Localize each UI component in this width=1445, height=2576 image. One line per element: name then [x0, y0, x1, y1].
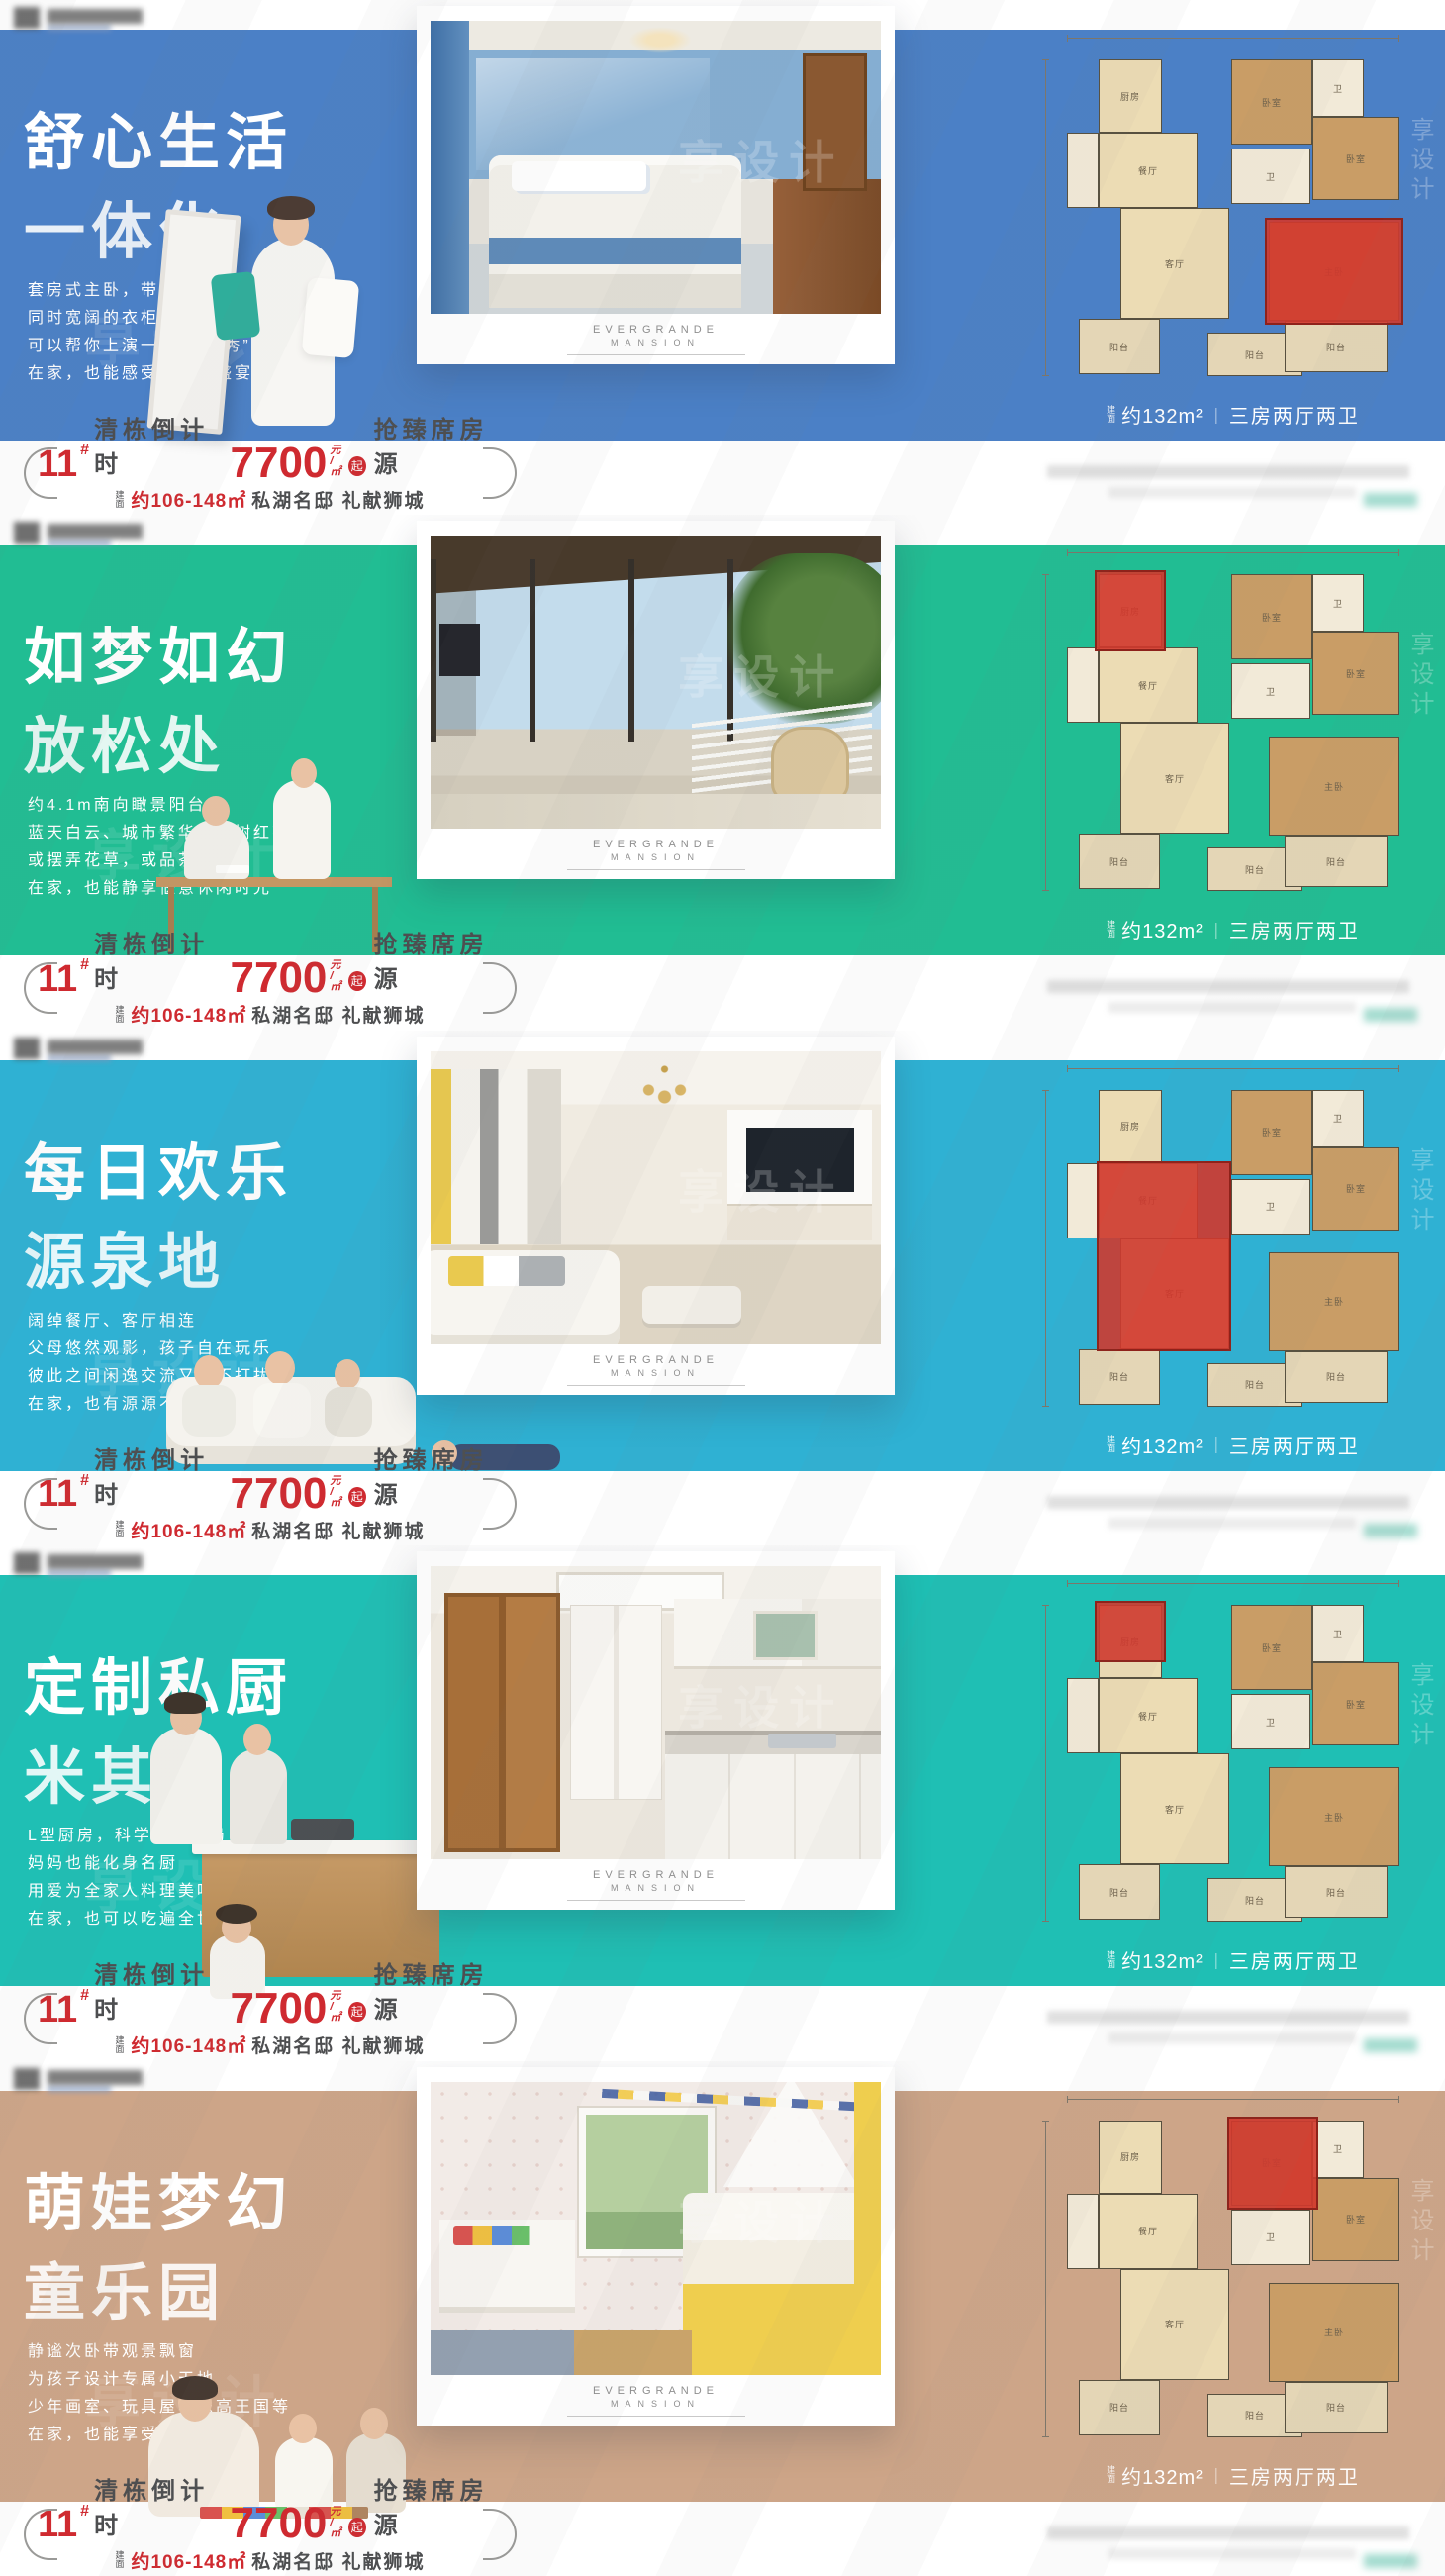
- logo-subtext-blur: [48, 26, 111, 31]
- floor-plan: 厨房 餐厅 客厅 阳台 阳台 卧室 卫 卧室 卫 主卧 阳台 建面 约132m²…: [1061, 2115, 1405, 2490]
- from-badge: 起: [348, 2518, 366, 2537]
- from-badge: 起: [348, 971, 366, 991]
- blurred-site-mark: [1364, 1008, 1417, 1022]
- interior-photo: 享设计: [431, 21, 881, 314]
- room-label: 客厅: [1165, 772, 1185, 785]
- room-label: 阳台: [1245, 1894, 1265, 1907]
- room-label: 厨房: [1120, 2150, 1140, 2163]
- title-line-1: 每日欢乐: [24, 1139, 293, 1208]
- room-label: 卧室: [1346, 1182, 1366, 1195]
- brand-line-2: MANSION: [431, 338, 881, 347]
- room-label: 客厅: [1165, 1803, 1185, 1816]
- cutout-shape: [267, 196, 315, 220]
- room-living: 客厅: [1120, 723, 1229, 834]
- room-bedroom: 卧室: [1312, 117, 1399, 200]
- cutout-shape: [273, 780, 331, 879]
- room-kitchen: 厨房: [1099, 59, 1162, 133]
- promo-banner: 萌娃梦幻童乐园 静谧次卧带观景飘窗 为孩子设计专属小天地 少年画室、玩具屋、乐高…: [0, 2061, 1445, 2576]
- price-line-1: 11 # 清栋倒计时 7700 元/㎡ 起 抢臻席房源: [38, 444, 503, 481]
- photo-shape: [444, 1593, 560, 1853]
- cutout-shape: [192, 1840, 447, 1854]
- photo-shape: [727, 1204, 872, 1241]
- caption-prefix: 建面: [1107, 1436, 1117, 1453]
- logo-text-blur: [48, 9, 143, 24]
- area-prefix: 建面: [115, 1521, 127, 1538]
- price-bar: 11 # 清栋倒计时 7700 元/㎡ 起 抢臻席房源 建面 约106-148㎡…: [38, 1989, 503, 2052]
- bracket-left: [24, 447, 57, 499]
- blurred-site-mark: [1364, 2038, 1417, 2052]
- logo-text-blur: [48, 1554, 143, 1569]
- room-label: 卧室: [1346, 152, 1366, 165]
- caption-area: 约132m²: [1121, 400, 1204, 429]
- price-bar: 11 # 清栋倒计时 7700 元/㎡ 起 抢臻席房源 建面 约106-148㎡…: [38, 2505, 503, 2568]
- room-label: 阳台: [1326, 341, 1346, 353]
- room-bedroom: 卧室: [1231, 1090, 1312, 1175]
- room-living: 客厅: [1120, 1753, 1229, 1864]
- room-label: 卫: [1266, 685, 1276, 698]
- room-label: 客厅: [1165, 2318, 1185, 2330]
- price-unit-top: 元: [330, 2507, 341, 2518]
- price-line-2: 建面 约106-148㎡ 私湖名邸 礼献狮城: [38, 486, 503, 513]
- highlighted-room: [1097, 1161, 1231, 1351]
- dimension-line: [1045, 574, 1046, 891]
- bracket-right: [483, 2509, 517, 2560]
- floor-plan: 厨房 餐厅 客厅 阳台 阳台 卧室 卫 卧室 卫 主卧 阳台 建面 约132m²…: [1061, 1599, 1405, 1974]
- photo-shape: [431, 21, 469, 314]
- cutout-shape: [182, 1385, 236, 1437]
- caption-separator: ｜: [1208, 1433, 1224, 1456]
- brand-line-1: EVERGRANDE: [431, 839, 881, 850]
- room-bedroom: 卧室: [1231, 1605, 1312, 1690]
- price-unit-bottom: /㎡: [330, 456, 341, 478]
- price-amount: 7700: [231, 1991, 328, 2027]
- area-prefix: 建面: [115, 2551, 127, 2569]
- room-label: 餐厅: [1138, 164, 1158, 177]
- room-label: 卧室: [1262, 1126, 1282, 1139]
- floor-plan: 厨房 餐厅 客厅 阳台 阳台 卧室 卫 卧室 卫 主卧 阳台 建面 约132m²…: [1061, 1084, 1405, 1459]
- room-label: 阳台: [1326, 1370, 1346, 1383]
- room-label: 阳台: [1245, 863, 1265, 876]
- room-kitchen: 厨房: [1099, 1090, 1162, 1163]
- building-number-hash: #: [80, 956, 89, 974]
- price-unit: 元/㎡: [330, 960, 341, 996]
- room-bath: 卫: [1312, 59, 1364, 117]
- photo-shape: [642, 1286, 741, 1324]
- price-line-1: 11 # 清栋倒计时 7700 元/㎡ 起 抢臻席房源: [38, 2505, 503, 2542]
- floor-plan-caption: 建面 约132m² ｜ 三房两厅两卫: [1061, 915, 1405, 943]
- room-label: 厨房: [1120, 90, 1140, 103]
- price-line-2: 建面 约106-148㎡ 私湖名邸 礼献狮城: [38, 2031, 503, 2058]
- room-dining: 餐厅: [1099, 1678, 1198, 1753]
- photo-card: 享设计 EVERGRANDE MANSION: [417, 1551, 895, 1910]
- room-label: 卧室: [1262, 1641, 1282, 1654]
- brand-divider: [567, 869, 745, 870]
- caption-layout-type: 三房两厅两卫: [1229, 400, 1360, 429]
- developer-logo-blurred: [14, 1037, 187, 1062]
- cutout-shape: [335, 1359, 360, 1389]
- room-kitchen: 厨房: [1099, 2121, 1162, 2194]
- room-label: 卫: [1333, 2142, 1343, 2155]
- caption-area: 约132m²: [1121, 1431, 1204, 1459]
- room-label: 餐厅: [1138, 1710, 1158, 1723]
- blurred-disclaimer-text: [1108, 2548, 1356, 2559]
- description-line: 为孩子设计专属小天地: [28, 2366, 291, 2394]
- developer-logo-blurred: [14, 521, 187, 546]
- blurred-disclaimer-text: [1047, 980, 1409, 993]
- caption-layout-type: 三房两厅两卫: [1229, 915, 1360, 943]
- logo-subtext-blur: [48, 1056, 111, 1061]
- price-line-2: 建面 约106-148㎡ 私湖名邸 礼献狮城: [38, 1517, 503, 1543]
- countdown-text: 清栋倒计时: [92, 410, 223, 481]
- room-balcony: 阳台: [1285, 836, 1388, 887]
- price-line-2: 建面 约106-148㎡ 私湖名邸 礼献狮城: [38, 1001, 503, 1028]
- slogan-text: 私湖名邸 礼献狮城: [251, 2547, 425, 2574]
- room-label: 阳台: [1109, 341, 1129, 353]
- banner-title: 每日欢乐源泉地: [24, 1130, 293, 1308]
- brand-logo: EVERGRANDE MANSION: [431, 829, 881, 870]
- caption-prefix: 建面: [1107, 2466, 1117, 2484]
- photo-card: 享设计 EVERGRANDE MANSION: [417, 1037, 895, 1395]
- logo-text-blur: [48, 524, 143, 539]
- cutout-shape: [172, 2376, 218, 2400]
- room-label: 卫: [1333, 1112, 1343, 1125]
- developer-logo-blurred: [14, 6, 187, 32]
- room-label: 餐厅: [1138, 679, 1158, 692]
- brand-line-2: MANSION: [431, 2399, 881, 2409]
- room-core: [1067, 133, 1099, 208]
- building-number-hash: #: [80, 1472, 89, 1490]
- title-line-1: 如梦如幻: [24, 624, 293, 692]
- highlighted-room: [1265, 218, 1403, 325]
- room-living: 客厅: [1120, 2269, 1229, 2380]
- cutout-shape: [325, 1387, 372, 1437]
- caption-layout-type: 三房两厅两卫: [1229, 2461, 1360, 2490]
- photo-card: 享设计 EVERGRANDE MANSION: [417, 2067, 895, 2426]
- dimension-line: [1045, 1090, 1046, 1407]
- slogan-text: 私湖名邸 礼献狮城: [251, 2031, 425, 2058]
- bracket-left: [24, 962, 57, 1014]
- bracket-right: [483, 1993, 517, 2044]
- cutout-shape: [243, 1724, 271, 1755]
- photo-card: 享设计 EVERGRANDE MANSION: [417, 521, 895, 879]
- price-amount: 7700: [231, 1476, 328, 1512]
- price-amount: 7700: [231, 960, 328, 996]
- photo-shape: [803, 53, 867, 191]
- room-label: 卫: [1333, 82, 1343, 95]
- room-bath: 卫: [1231, 149, 1310, 204]
- room-bath: 卫: [1231, 1179, 1310, 1235]
- area-prefix: 建面: [115, 491, 127, 509]
- logo-subtext-blur: [48, 2087, 111, 2092]
- price-bar: 11 # 清栋倒计时 7700 元/㎡ 起 抢臻席房源 建面 约106-148㎡…: [38, 1474, 503, 1537]
- bracket-left: [24, 2509, 57, 2560]
- cutout-shape: [265, 1351, 295, 1385]
- room-label: 主卧: [1324, 780, 1344, 793]
- room-label: 卫: [1266, 1200, 1276, 1213]
- photo-card: 享设计 EVERGRANDE MANSION: [417, 6, 895, 364]
- room-core: [1067, 1678, 1099, 1753]
- room-bath: 卫: [1312, 1090, 1364, 1147]
- bracket-left: [24, 1993, 57, 2044]
- title-line-1: 萌娃梦幻: [24, 2170, 293, 2238]
- room-label: 厨房: [1120, 1120, 1140, 1133]
- brand-line-2: MANSION: [431, 1368, 881, 1378]
- room-label: 阳台: [1109, 2401, 1129, 2414]
- photo-shape: [727, 553, 881, 724]
- cutout-shape: [360, 2408, 388, 2439]
- developer-logo-blurred: [14, 1551, 187, 1577]
- cutout-shape: [302, 277, 360, 358]
- banner-title: 萌娃梦幻童乐园: [24, 2160, 293, 2338]
- photo-shape: [683, 2193, 881, 2375]
- people-photo-cutout: [156, 194, 364, 434]
- caption-separator: ｜: [1208, 403, 1224, 427]
- bracket-right: [483, 447, 517, 499]
- room-label: 主卧: [1324, 1811, 1344, 1824]
- dimension-line: [1045, 59, 1046, 376]
- bracket-left: [24, 1478, 57, 1530]
- area-range: 约106-148㎡: [131, 2547, 246, 2574]
- room-label: 主卧: [1324, 2326, 1344, 2338]
- photo-shape: [453, 2226, 561, 2246]
- interior-photo: 享设计: [431, 2082, 881, 2375]
- blurred-disclaimer-text: [1047, 465, 1409, 478]
- blurred-disclaimer-text: [1108, 487, 1356, 498]
- from-badge: 起: [348, 456, 366, 476]
- caption-separator: ｜: [1208, 918, 1224, 941]
- price-bar: 11 # 清栋倒计时 7700 元/㎡ 起 抢臻席房源 建面 约106-148㎡…: [38, 958, 503, 1022]
- room-label: 卧室: [1346, 1698, 1366, 1711]
- developer-logo-blurred: [14, 2067, 187, 2093]
- room-balcony: 阳台: [1285, 1351, 1388, 1403]
- building-number-hash: #: [80, 1987, 89, 2005]
- promo-banner: 舒心生活一体化 套房式主卧，带独立卫浴 同时宽阔的衣柜 可以帮你上演一场“服装秀…: [0, 0, 1445, 515]
- room-bedroom: 卧室: [1312, 1147, 1399, 1231]
- room-living: 客厅: [1120, 208, 1229, 319]
- caption-area: 约132m²: [1121, 1945, 1204, 1974]
- room-bath: 卫: [1231, 2210, 1310, 2265]
- brand-logo: EVERGRANDE MANSION: [431, 2375, 881, 2417]
- from-badge: 起: [348, 1487, 366, 1507]
- room-label: 卧室: [1346, 2213, 1366, 2226]
- room-label: 阳台: [1326, 855, 1346, 868]
- floor-plan-caption: 建面 约132m² ｜ 三房两厅两卫: [1061, 400, 1405, 429]
- cutout-shape: [230, 1749, 287, 1844]
- cutout-shape: [211, 271, 261, 341]
- room-bedroom: 卧室: [1312, 2178, 1399, 2261]
- photo-shape: [768, 1734, 835, 1748]
- countdown-text: 清栋倒计时: [92, 2471, 223, 2542]
- blurred-site-mark: [1364, 2554, 1417, 2568]
- photo-shape: [431, 2330, 692, 2374]
- blurred-disclaimer-text: [1047, 1496, 1409, 1509]
- room-balcony: 阳台: [1079, 319, 1160, 374]
- room-balcony: 阳台: [1079, 2380, 1160, 2435]
- floor-plan-drawing: 厨房 餐厅 客厅 阳台 阳台 卧室 卫 卧室 卫 主卧 阳台: [1061, 1084, 1405, 1413]
- price-line-1: 11 # 清栋倒计时 7700 元/㎡ 起 抢臻席房源: [38, 1474, 503, 1512]
- room-bath: 卫: [1231, 663, 1310, 719]
- from-badge: 起: [348, 2002, 366, 2022]
- slogan-text: 私湖名邸 礼献狮城: [251, 1517, 425, 1543]
- photo-shape: [570, 1605, 662, 1800]
- floor-plan-drawing: 厨房 餐厅 客厅 阳台 阳台 卧室 卫 卧室 卫 主卧 阳台: [1061, 53, 1405, 382]
- interior-photo: 享设计: [431, 1051, 881, 1344]
- interior-photo: 享设计: [431, 1566, 881, 1859]
- room-bath: 卫: [1312, 574, 1364, 632]
- caption-area: 约132m²: [1121, 2461, 1204, 2490]
- logo-subtext-blur: [48, 541, 111, 545]
- room-label: 卧室: [1262, 611, 1282, 624]
- room-label: 客厅: [1165, 257, 1185, 270]
- room-dining: 餐厅: [1099, 647, 1198, 723]
- area-range: 约106-148㎡: [131, 1001, 246, 1028]
- area-range: 约106-148㎡: [131, 486, 246, 513]
- room-balcony: 阳台: [1079, 1864, 1160, 1920]
- description-line: 静谧次卧带观景飘窗: [28, 2338, 291, 2366]
- area-prefix: 建面: [115, 2036, 127, 2054]
- caption-prefix: 建面: [1107, 1951, 1117, 1969]
- room-label: 阳台: [1109, 1370, 1129, 1383]
- photo-shape: [854, 2082, 881, 2293]
- price-unit-bottom: /㎡: [330, 2518, 341, 2539]
- logo-mark-icon: [14, 1038, 40, 1059]
- dimension-line: [1045, 2121, 1046, 2437]
- room-label: 阳台: [1326, 2401, 1346, 2414]
- promo-banner: 每日欢乐源泉地 阔绰餐厅、客厅相连 父母悠然观影，孩子自在玩乐 彼此之间闲逸交流…: [0, 1031, 1445, 1545]
- blurred-disclaimer-text: [1047, 2526, 1409, 2539]
- highlighted-room: [1095, 1601, 1166, 1662]
- watermark-on-photo: 享设计: [678, 1672, 844, 1737]
- photo-shape: [431, 1069, 561, 1245]
- countdown-text: 清栋倒计时: [92, 1440, 223, 1512]
- room-balcony: 阳台: [1285, 1866, 1388, 1918]
- brand-divider: [567, 1385, 745, 1386]
- building-number-hash: #: [80, 442, 89, 459]
- caption-separator: ｜: [1208, 1948, 1224, 1972]
- brand-line-2: MANSION: [431, 852, 881, 862]
- caption-separator: ｜: [1208, 2463, 1224, 2487]
- room-label: 阳台: [1109, 1886, 1129, 1899]
- photo-shape: [431, 794, 881, 830]
- room-label: 卧室: [1346, 667, 1366, 680]
- cutout-shape: [194, 1355, 224, 1389]
- caption-layout-type: 三房两厅两卫: [1229, 1945, 1360, 1974]
- room-label: 卫: [1333, 1628, 1343, 1640]
- photo-shape: [665, 1754, 881, 1860]
- room-dining: 餐厅: [1099, 2194, 1198, 2269]
- dimension-line: [1067, 2099, 1399, 2100]
- room-core: [1067, 647, 1099, 723]
- logo-mark-icon: [14, 522, 40, 544]
- logo-mark-icon: [14, 1552, 40, 1574]
- floor-plan-drawing: 厨房 餐厅 客厅 阳台 阳台 卧室 卫 卧室 卫 主卧 阳台: [1061, 1599, 1405, 1928]
- slogan-text: 私湖名邸 礼献狮城: [251, 486, 425, 513]
- interior-photo: 享设计: [431, 536, 881, 829]
- price-amount: 7700: [231, 2506, 328, 2541]
- highlighted-room: [1095, 570, 1166, 651]
- floor-plan-caption: 建面 约132m² ｜ 三房两厅两卫: [1061, 1945, 1405, 1974]
- room-label: 阳台: [1109, 855, 1129, 868]
- floor-plan-drawing: 厨房 餐厅 客厅 阳台 阳台 卧室 卫 卧室 卫 主卧 阳台: [1061, 2115, 1405, 2443]
- cutout-shape: [289, 2414, 317, 2443]
- logo-text-blur: [48, 1040, 143, 1054]
- brand-logo: EVERGRANDE MANSION: [431, 1344, 881, 1386]
- blurred-disclaimer-text: [1108, 2032, 1356, 2043]
- room-bedroom: 卧室: [1312, 1662, 1399, 1745]
- title-line-1: 舒心生活: [24, 109, 293, 177]
- countdown-text: 清栋倒计时: [92, 1955, 223, 2027]
- promo-banner: 定制私厨米其林 L型厨房，科学合理布局 妈妈也能化身名厨 用爱为全家人料理美味 …: [0, 1545, 1445, 2060]
- banner-title: 如梦如幻放松处: [24, 614, 293, 792]
- title-line-2: 源泉地: [24, 1219, 293, 1308]
- dimension-line: [1067, 38, 1399, 39]
- logo-subtext-blur: [48, 1571, 111, 1576]
- room-label: 卫: [1266, 1716, 1276, 1729]
- cutout-shape: [150, 1728, 222, 1844]
- title-line-2: 童乐园: [24, 2249, 293, 2338]
- room-bedroom: 卧室: [1312, 632, 1399, 715]
- photo-shape: [439, 624, 480, 676]
- room-core: [1067, 2194, 1099, 2269]
- brand-line-1: EVERGRANDE: [431, 1869, 881, 1881]
- brand-logo: EVERGRANDE MANSION: [431, 1859, 881, 1901]
- photo-shape: [489, 238, 741, 264]
- room-master-bedroom: 主卧: [1269, 1767, 1399, 1866]
- area-range: 约106-148㎡: [131, 2031, 246, 2058]
- dimension-line: [1067, 1583, 1399, 1584]
- room-label: 阳台: [1245, 348, 1265, 361]
- blurred-site-mark: [1364, 1524, 1417, 1537]
- photo-shape: [771, 727, 849, 803]
- photo-shape: [431, 559, 764, 742]
- room-bedroom: 卧室: [1231, 59, 1312, 145]
- brand-divider: [567, 2416, 745, 2417]
- floor-plan-drawing: 厨房 餐厅 客厅 阳台 阳台 卧室 卫 卧室 卫 主卧 阳台: [1061, 568, 1405, 897]
- floor-plan: 厨房 餐厅 客厅 阳台 阳台 卧室 卫 卧室 卫 主卧 阳台 建面 约132m²…: [1061, 53, 1405, 429]
- floor-plan-caption: 建面 约132m² ｜ 三房两厅两卫: [1061, 2461, 1405, 2490]
- logo-mark-icon: [14, 2068, 40, 2090]
- room-label: 阳台: [1245, 2409, 1265, 2422]
- caption-prefix: 建面: [1107, 406, 1117, 424]
- floor-plan-caption: 建面 约132m² ｜ 三房两厅两卫: [1061, 1431, 1405, 1459]
- photo-shape: [746, 1128, 854, 1192]
- price-unit: 元/㎡: [330, 2507, 341, 2542]
- room-label: 卧室: [1262, 96, 1282, 109]
- bracket-right: [483, 962, 517, 1014]
- room-label: 阳台: [1245, 1378, 1265, 1391]
- blurred-disclaimer-text: [1108, 1518, 1356, 1529]
- room-balcony: 阳台: [1285, 321, 1388, 372]
- brand-divider: [567, 1900, 745, 1901]
- room-bath: 卫: [1312, 2121, 1364, 2178]
- price-unit-bottom: /㎡: [330, 2002, 341, 2024]
- cutout-shape: [291, 1819, 354, 1840]
- blurred-site-mark: [1364, 493, 1417, 507]
- price-amount: 7700: [231, 446, 328, 481]
- room-label: 阳台: [1326, 1886, 1346, 1899]
- countdown-text: 清栋倒计时: [92, 925, 223, 996]
- room-balcony: 阳台: [1285, 2382, 1388, 2433]
- photo-shape: [448, 1256, 565, 1286]
- dimension-line: [1067, 1068, 1399, 1069]
- photo-shape: [512, 161, 647, 191]
- price-line-2: 建面 约106-148㎡ 私湖名邸 礼献狮城: [38, 2547, 503, 2574]
- photo-shape: [628, 27, 692, 53]
- logo-text-blur: [48, 2070, 143, 2085]
- price-unit: 元/㎡: [330, 446, 341, 481]
- blurred-disclaimer-text: [1108, 1002, 1356, 1013]
- brand-line-1: EVERGRANDE: [431, 2385, 881, 2397]
